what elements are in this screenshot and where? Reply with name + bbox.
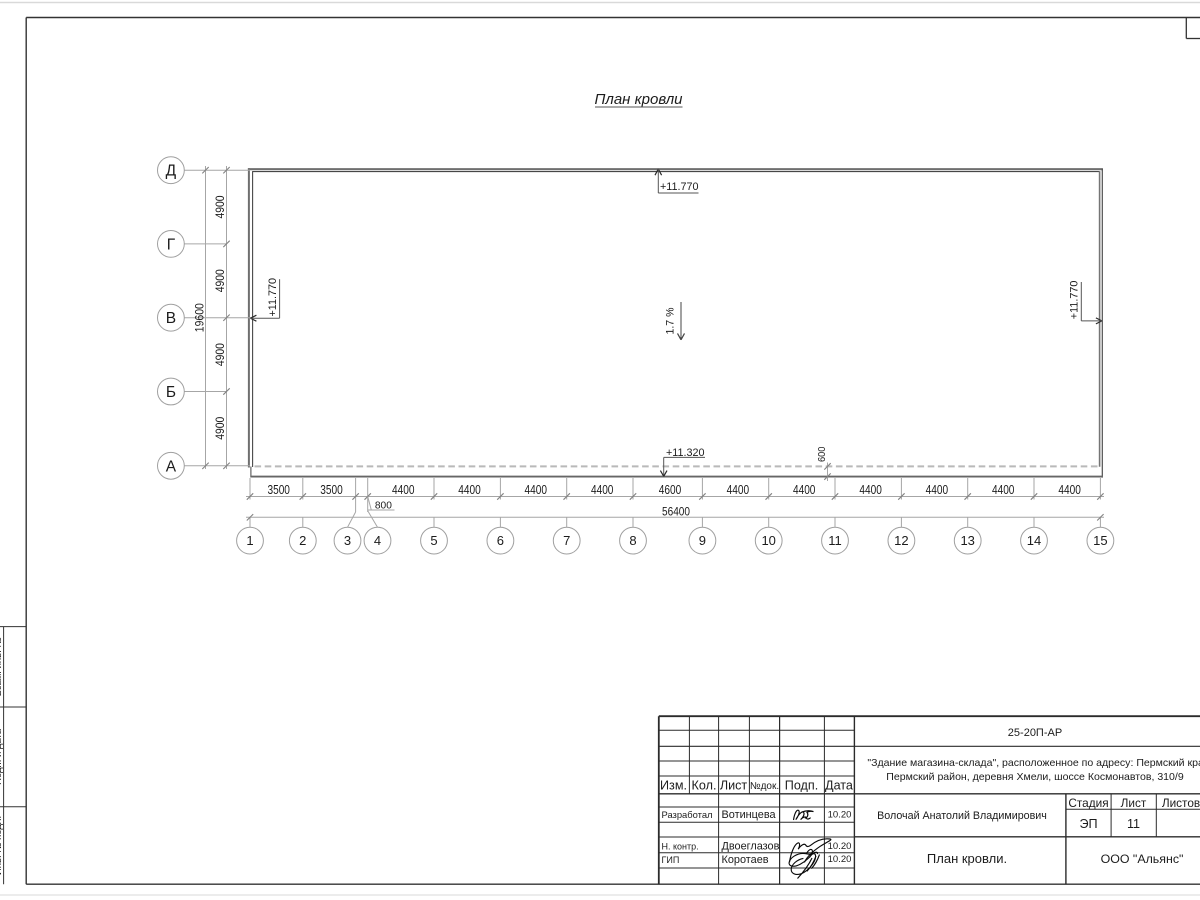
svg-text:4400: 4400 <box>458 483 481 497</box>
svg-text:ГИП: ГИП <box>662 855 680 865</box>
svg-text:План кровли.: План кровли. <box>927 851 1007 866</box>
svg-text:ЭП: ЭП <box>1079 817 1097 831</box>
svg-text:Взам. инв. №: Взам. инв. № <box>0 637 4 696</box>
svg-text:4400: 4400 <box>1058 483 1081 497</box>
svg-text:Подп.: Подп. <box>785 779 818 793</box>
svg-text:Двоеглазов: Двоеглазов <box>722 841 780 853</box>
svg-text:Кол.: Кол. <box>692 779 717 793</box>
svg-text:Вотинцева: Вотинцева <box>722 809 777 821</box>
svg-text:Волочай Анатолий Владимирович: Волочай Анатолий Владимирович <box>877 810 1047 822</box>
svg-text:2: 2 <box>299 533 306 548</box>
svg-text:План кровли: План кровли <box>595 91 684 108</box>
svg-text:4900: 4900 <box>213 195 227 218</box>
svg-text:4400: 4400 <box>727 483 750 497</box>
svg-text:600: 600 <box>816 446 828 462</box>
svg-text:Н. контр.: Н. контр. <box>662 841 699 851</box>
svg-text:Г: Г <box>167 236 176 253</box>
svg-text:4900: 4900 <box>213 269 227 292</box>
svg-text:Разработал: Разработал <box>662 809 713 820</box>
svg-text:+11.770: +11.770 <box>267 278 279 317</box>
svg-text:Изм.: Изм. <box>660 779 687 793</box>
svg-text:Листов: Листов <box>1162 796 1200 810</box>
svg-text:4400: 4400 <box>591 483 614 497</box>
svg-text:11: 11 <box>1127 817 1140 831</box>
svg-text:Коротаев: Коротаев <box>722 854 769 866</box>
svg-text:В: В <box>166 310 176 327</box>
svg-text:4400: 4400 <box>992 483 1015 497</box>
svg-text:ООО "Альянс": ООО "Альянс" <box>1101 852 1184 866</box>
svg-text:13: 13 <box>960 533 974 548</box>
svg-text:56400: 56400 <box>662 504 690 518</box>
svg-text:Инв. № подл.: Инв. № подл. <box>0 816 4 875</box>
svg-text:1: 1 <box>246 533 253 548</box>
svg-text:800: 800 <box>375 500 393 511</box>
svg-text:8: 8 <box>629 533 636 548</box>
svg-text:7: 7 <box>563 533 570 548</box>
svg-text:14: 14 <box>1027 533 1041 548</box>
svg-text:4400: 4400 <box>926 483 949 497</box>
svg-text:+11.770: +11.770 <box>1069 281 1081 320</box>
svg-text:Пермский район, деревня Хмели,: Пермский район, деревня Хмели, шоссе Кос… <box>886 771 1184 783</box>
svg-text:Лист: Лист <box>720 779 748 793</box>
svg-text:Д: Д <box>166 163 177 180</box>
svg-text:5: 5 <box>430 533 437 548</box>
svg-text:4400: 4400 <box>859 483 882 497</box>
svg-text:10: 10 <box>761 533 775 548</box>
svg-text:9: 9 <box>699 533 706 548</box>
svg-text:15: 15 <box>1093 533 1107 548</box>
svg-text:10.20: 10.20 <box>828 854 852 865</box>
svg-text:Стадия: Стадия <box>1068 796 1108 810</box>
svg-text:10.20: 10.20 <box>828 841 852 852</box>
svg-text:10.20: 10.20 <box>828 810 852 821</box>
svg-text:3500: 3500 <box>320 483 343 497</box>
svg-text:4900: 4900 <box>213 417 227 440</box>
svg-text:19600: 19600 <box>192 303 206 332</box>
svg-text:25-20П-АР: 25-20П-АР <box>1008 727 1062 739</box>
svg-text:1.7 %: 1.7 % <box>665 307 677 334</box>
svg-text:3: 3 <box>344 533 351 548</box>
svg-text:№док.: №док. <box>750 781 779 792</box>
svg-text:"Здание магазина-склада", расп: "Здание магазина-склада", расположенное … <box>867 757 1200 769</box>
svg-text:Дата: Дата <box>825 779 853 793</box>
svg-text:Лист: Лист <box>1121 796 1147 810</box>
svg-text:4400: 4400 <box>525 483 548 497</box>
svg-text:4: 4 <box>374 533 381 548</box>
svg-text:11: 11 <box>828 533 842 548</box>
svg-text:+11.770: +11.770 <box>660 181 699 193</box>
svg-text:4900: 4900 <box>213 343 227 366</box>
svg-text:4400: 4400 <box>392 483 415 497</box>
svg-text:3500: 3500 <box>267 483 290 497</box>
svg-text:Б: Б <box>166 384 176 401</box>
svg-text:4400: 4400 <box>793 483 816 497</box>
svg-text:6: 6 <box>497 533 504 548</box>
svg-text:12: 12 <box>894 533 908 548</box>
svg-text:4600: 4600 <box>659 483 682 497</box>
svg-text:А: А <box>166 458 177 475</box>
svg-text:Подп. и дата: Подп. и дата <box>0 728 4 785</box>
